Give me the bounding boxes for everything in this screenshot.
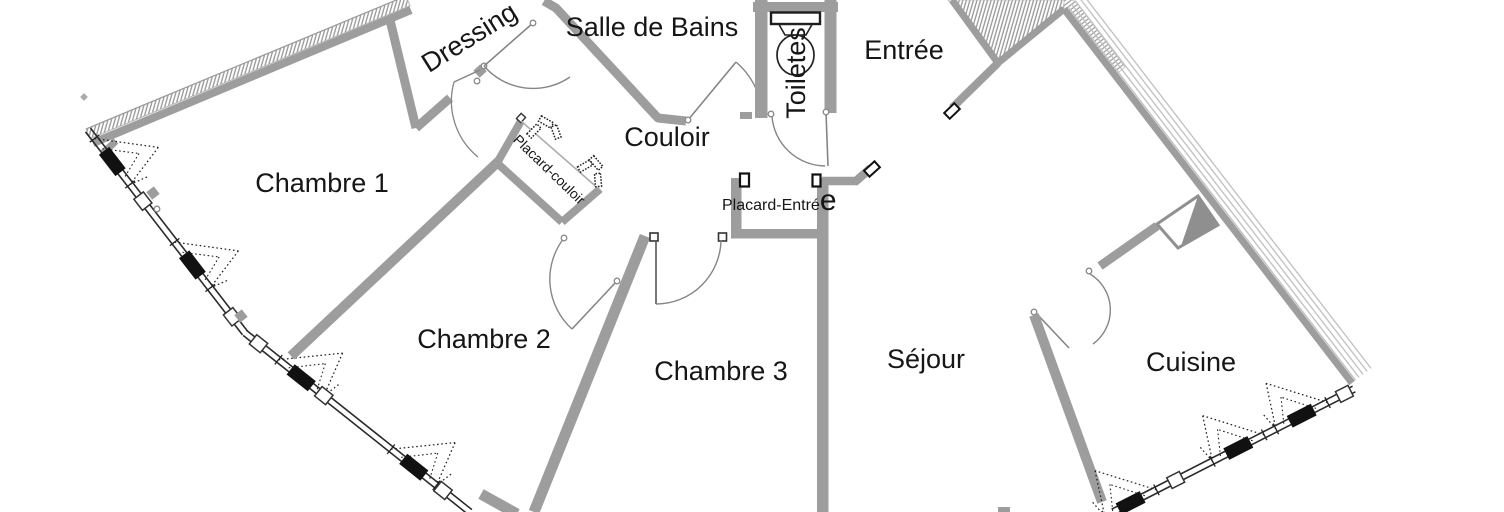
svg-text:Cuisine: Cuisine [1146, 347, 1236, 377]
svg-text:Chambre 2: Chambre 2 [417, 324, 551, 354]
svg-text:Chambre 1: Chambre 1 [255, 168, 389, 198]
svg-text:Couloir: Couloir [624, 122, 710, 152]
svg-text:Entrée: Entrée [864, 35, 944, 65]
svg-text:Toiletes: Toiletes [781, 27, 811, 119]
svg-text:Salle de Bains: Salle de Bains [566, 12, 739, 42]
svg-text:Séjour: Séjour [887, 344, 965, 374]
svg-text:Chambre 3: Chambre 3 [654, 356, 788, 386]
